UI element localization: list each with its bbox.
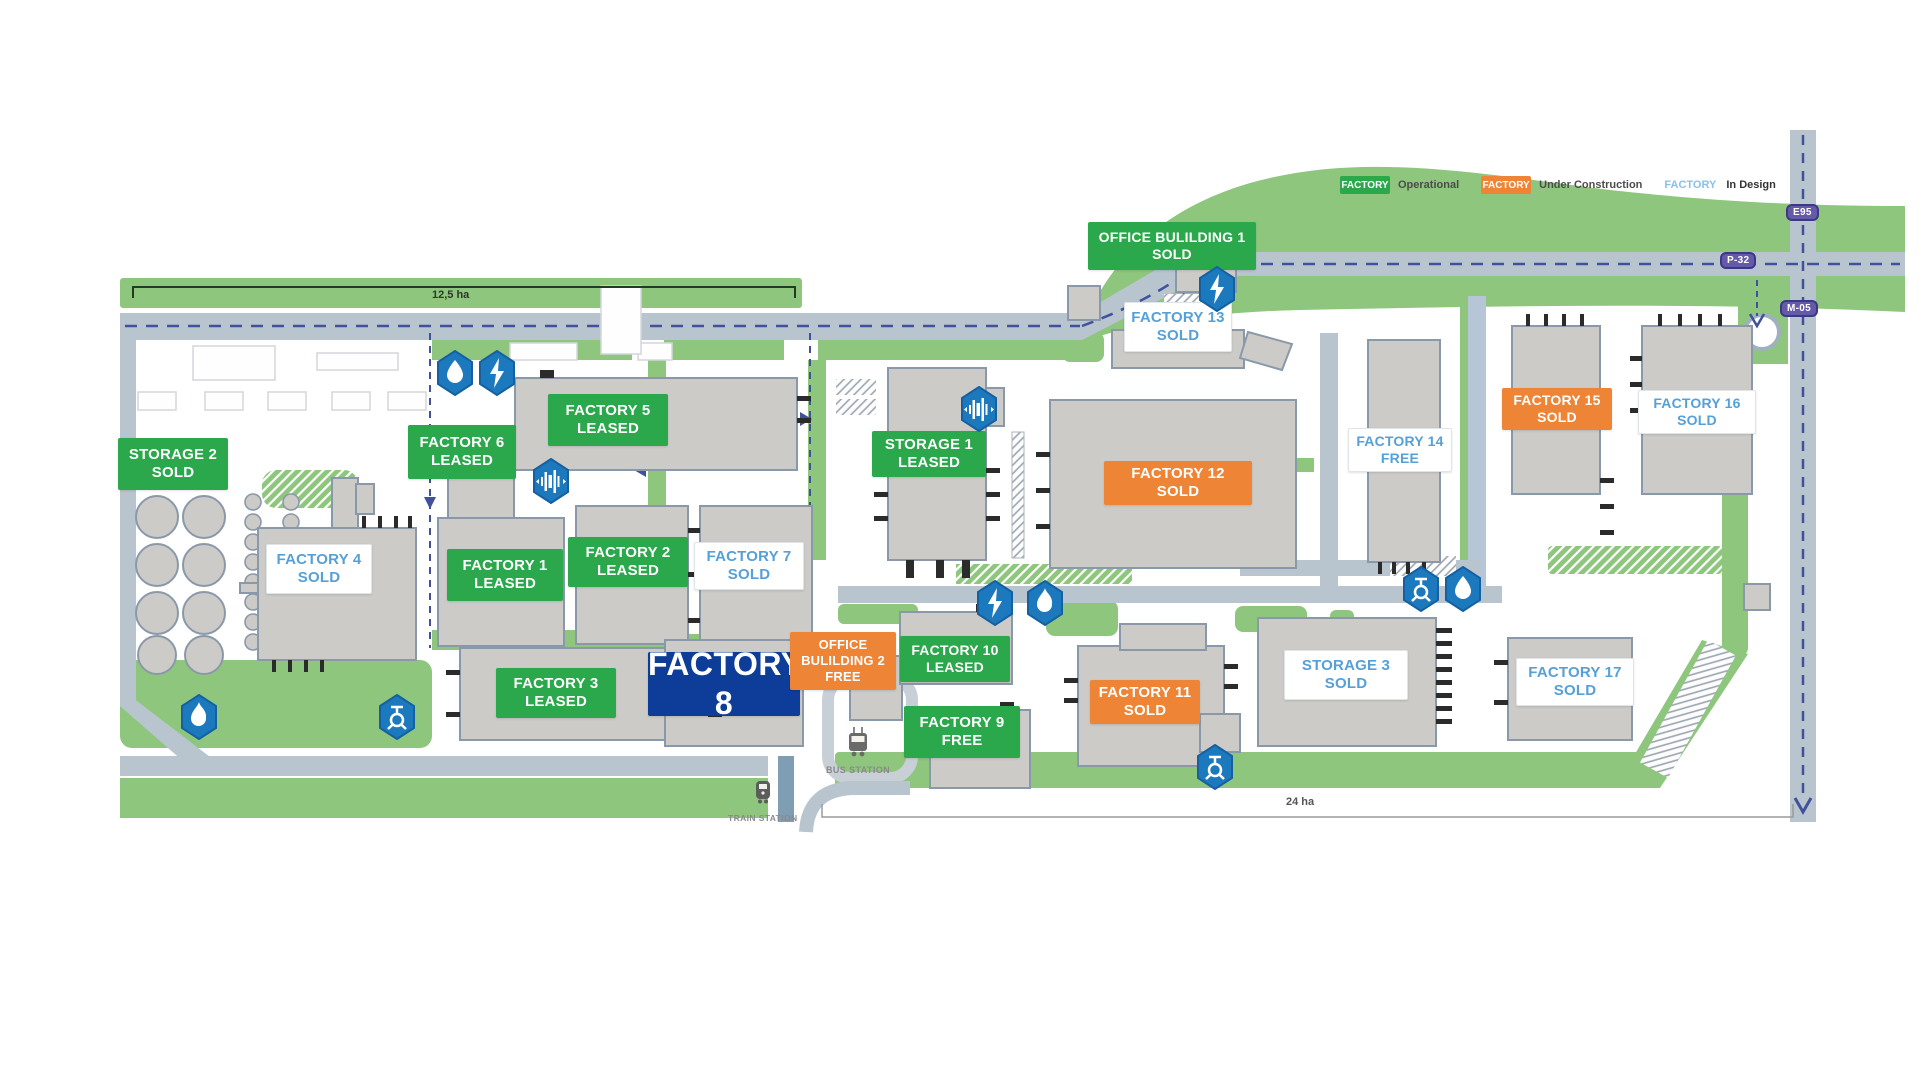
area-label-west: 12,5 ha: [432, 289, 469, 301]
legend-operational-label: Operational: [1398, 179, 1459, 191]
train-icon: [752, 778, 774, 811]
plot-status: LEASED: [496, 693, 616, 711]
road-sign-p32: P-32: [1720, 252, 1756, 269]
road-sign-m05: M-05: [1780, 300, 1818, 317]
plot-badge-factory-5[interactable]: FACTORY 5 LEASED: [548, 394, 668, 446]
plot-name: FACTORY 7: [695, 548, 803, 566]
electricity-icon: [1198, 266, 1236, 312]
road-sign-e95: E95: [1786, 204, 1819, 221]
plot-name: FACTORY 14: [1349, 433, 1451, 450]
legend-under-construction-chip: FACTORY: [1481, 176, 1531, 194]
plot-status: FREE: [1349, 450, 1451, 467]
plot-name: OFFICE BULILDING 1: [1088, 229, 1256, 246]
plot-status: SOLD: [1104, 483, 1252, 501]
plot-name: STORAGE 1: [872, 436, 986, 454]
plot-name: FACTORY 1: [447, 557, 563, 575]
plot-name: FACTORY 5: [548, 402, 668, 420]
plot-badge-factory-12[interactable]: FACTORY 12 SOLD: [1104, 461, 1252, 505]
legend-in-design-chip: FACTORY: [1664, 176, 1716, 194]
plot-name: FACTORY 9: [904, 714, 1020, 732]
plot-badge-factory-11[interactable]: FACTORY 11 SOLD: [1090, 680, 1200, 724]
legend-operational-chip: FACTORY: [1340, 176, 1390, 194]
plot-name: OFFICE BULILDING 2: [790, 637, 896, 669]
plot-badge-factory-15[interactable]: FACTORY 15 SOLD: [1502, 388, 1612, 430]
plot-badge-factory-7[interactable]: FACTORY 7 SOLD: [694, 542, 804, 590]
pump-station-icon: [532, 458, 570, 504]
plot-status: SOLD: [1502, 409, 1612, 426]
plot-badge-storage-3[interactable]: STORAGE 3 SOLD: [1284, 650, 1408, 700]
drainage-valve-icon: [378, 694, 416, 740]
plot-badge-office-building-2[interactable]: OFFICE BULILDING 2 FREE: [790, 632, 896, 690]
plot-name: FACTORY 4: [267, 551, 371, 569]
plot-status: LEASED: [447, 575, 563, 593]
plot-badge-factory-14[interactable]: FACTORY 14 FREE: [1348, 428, 1452, 472]
plot-badge-factory-10[interactable]: FACTORY 10 LEASED: [900, 636, 1010, 682]
plot-name: FACTORY 17: [1517, 664, 1633, 682]
drainage-valve-icon: [1402, 566, 1440, 612]
drainage-valve-icon: [1196, 744, 1234, 790]
pump-station-icon: [960, 386, 998, 432]
plot-status: SOLD: [1639, 412, 1755, 429]
site-map-base: [0, 0, 1920, 1080]
plot-status: SOLD: [267, 569, 371, 587]
plot-badge-office-building-1[interactable]: OFFICE BULILDING 1 SOLD: [1088, 222, 1256, 270]
gas-icon: [180, 694, 218, 740]
plot-name: STORAGE 3: [1285, 657, 1407, 675]
plot-status: LEASED: [408, 452, 516, 470]
plot-status: SOLD: [1285, 675, 1407, 693]
plot-name: FACTORY 2: [568, 544, 688, 562]
plot-status: FREE: [790, 669, 896, 685]
plot-name: FACTORY 11: [1090, 684, 1200, 702]
water-icon: [436, 350, 474, 396]
plot-badge-storage-2[interactable]: STORAGE 2 SOLD: [118, 438, 228, 490]
bus-icon: [845, 726, 871, 763]
plot-name: FACTORY 16: [1639, 395, 1755, 412]
plot-status: LEASED: [548, 420, 668, 438]
legend-under-construction-label: Under Construction: [1539, 179, 1642, 191]
plot-badge-factory-1[interactable]: FACTORY 1 LEASED: [447, 549, 563, 601]
gas-icon: [1026, 580, 1064, 626]
plot-name: FACTORY 6: [408, 434, 516, 452]
plot-status: LEASED: [900, 659, 1010, 676]
plot-status: SOLD: [118, 464, 228, 482]
plot-badge-factory-16[interactable]: FACTORY 16 SOLD: [1638, 390, 1756, 434]
legend: FACTORY Operational FACTORY Under Constr…: [1340, 176, 1776, 194]
plot-badge-factory-4[interactable]: FACTORY 4 SOLD: [266, 544, 372, 594]
plot-status: SOLD: [1088, 246, 1256, 263]
legend-in-design-label: In Design: [1726, 179, 1776, 191]
plot-badge-storage-1[interactable]: STORAGE 1 LEASED: [872, 431, 986, 477]
plot-badge-factory-8-selected[interactable]: FACTORY 8: [648, 652, 800, 716]
plot-name: FACTORY 10: [900, 642, 1010, 659]
plot-status: SOLD: [1125, 327, 1231, 345]
plot-status: SOLD: [1090, 702, 1200, 720]
plot-badge-factory-3[interactable]: FACTORY 3 LEASED: [496, 668, 616, 718]
plot-status: SOLD: [695, 566, 803, 584]
plot-name: FACTORY 8: [648, 645, 800, 723]
plot-name: FACTORY 12: [1104, 465, 1252, 483]
plot-badge-factory-9[interactable]: FACTORY 9 FREE: [904, 706, 1020, 758]
plot-name: STORAGE 2: [118, 446, 228, 464]
bus-station: BUS STATION: [826, 726, 890, 775]
train-station-label: TRAIN STATION: [728, 813, 798, 823]
plot-name: FACTORY 3: [496, 675, 616, 693]
masterplan-map: FACTORY Operational FACTORY Under Constr…: [0, 0, 1920, 1080]
area-label-east: 24 ha: [1286, 796, 1314, 808]
bus-station-label: BUS STATION: [826, 765, 890, 775]
electricity-icon: [976, 580, 1014, 626]
train-station: TRAIN STATION: [728, 778, 798, 823]
plot-status: LEASED: [568, 562, 688, 580]
plot-badge-factory-17[interactable]: FACTORY 17 SOLD: [1516, 658, 1634, 706]
plot-badge-factory-2[interactable]: FACTORY 2 LEASED: [568, 537, 688, 587]
water-icon: [1444, 566, 1482, 612]
plot-badge-factory-6[interactable]: FACTORY 6 LEASED: [408, 425, 516, 479]
plot-status: SOLD: [1517, 682, 1633, 700]
plot-name: FACTORY 15: [1502, 392, 1612, 409]
electricity-icon: [478, 350, 516, 396]
plot-status: LEASED: [872, 454, 986, 472]
plot-status: FREE: [904, 732, 1020, 750]
